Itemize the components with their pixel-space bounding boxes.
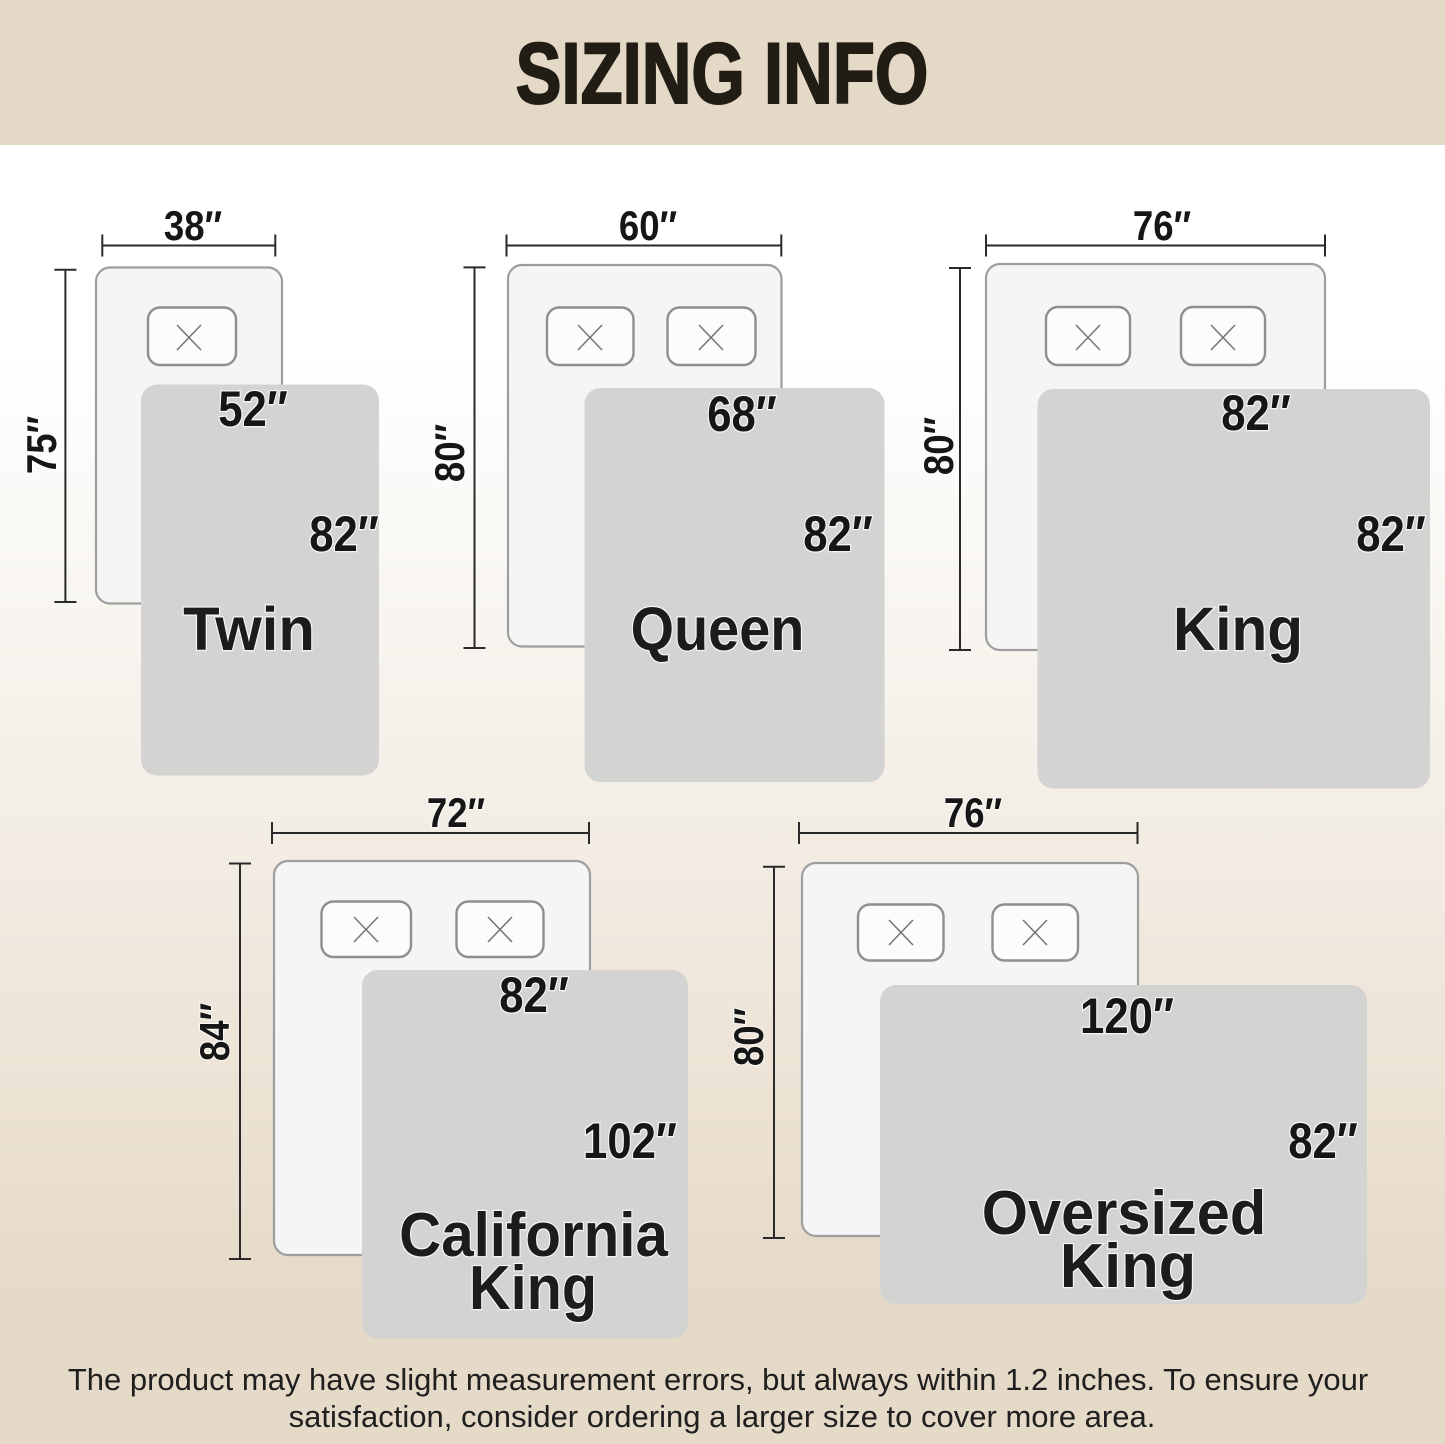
svg-text:52″: 52″ xyxy=(218,380,288,436)
svg-text:82″: 82″ xyxy=(499,966,569,1022)
svg-text:102″: 102″ xyxy=(583,1112,677,1168)
svg-text:84″: 84″ xyxy=(192,1003,239,1061)
svg-text:60″: 60″ xyxy=(619,203,677,250)
svg-text:82″: 82″ xyxy=(309,505,379,561)
svg-text:Queen: Queen xyxy=(631,596,805,664)
svg-text:King: King xyxy=(469,1253,597,1322)
svg-text:The product may have slight me: The product may have slight measurement … xyxy=(68,1362,1368,1397)
svg-text:King: King xyxy=(1060,1232,1196,1301)
svg-text:68″: 68″ xyxy=(707,385,777,441)
svg-text:Twin: Twin xyxy=(183,594,315,663)
svg-text:80″: 80″ xyxy=(916,417,963,475)
svg-text:82″: 82″ xyxy=(1221,384,1291,440)
svg-text:76″: 76″ xyxy=(944,790,1002,837)
svg-text:38″: 38″ xyxy=(164,203,222,250)
svg-text:80″: 80″ xyxy=(726,1008,773,1066)
svg-text:satisfaction, consider orderin: satisfaction, consider ordering a larger… xyxy=(289,1399,1156,1434)
svg-text:80″: 80″ xyxy=(427,424,474,482)
svg-text:SIZING INFO: SIZING INFO xyxy=(516,26,929,122)
svg-text:75″: 75″ xyxy=(19,416,66,474)
svg-text:120″: 120″ xyxy=(1080,987,1174,1043)
svg-text:82″: 82″ xyxy=(1356,505,1426,561)
svg-text:82″: 82″ xyxy=(803,505,873,561)
svg-text:82″: 82″ xyxy=(1288,1112,1358,1168)
svg-text:King: King xyxy=(1173,595,1303,663)
svg-text:72″: 72″ xyxy=(427,790,485,837)
svg-text:76″: 76″ xyxy=(1133,203,1191,250)
